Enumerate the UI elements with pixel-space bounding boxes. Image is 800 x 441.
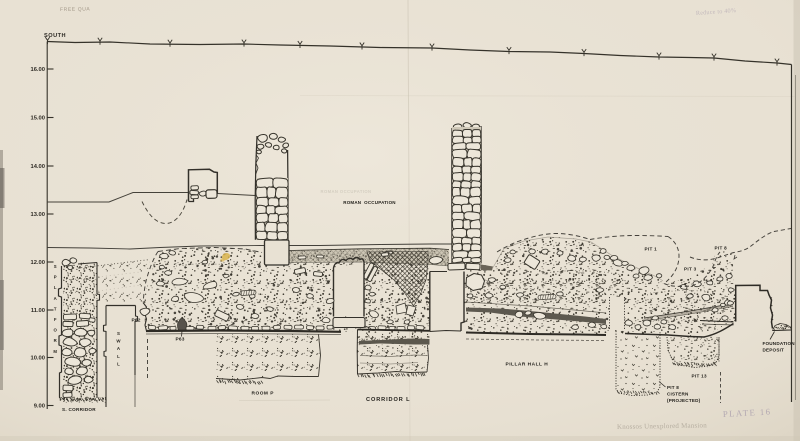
svg-text:PIT 13: PIT 13 — [692, 374, 707, 379]
svg-text:13.00: 13.00 — [30, 212, 45, 218]
svg-text:P63: P63 — [176, 337, 185, 343]
svg-text:PIT 3: PIT 3 — [684, 267, 697, 272]
svg-text:CISTERN: CISTERN — [667, 392, 689, 397]
svg-text:P62: P62 — [132, 318, 141, 324]
svg-text:11.00: 11.00 — [31, 308, 45, 314]
svg-text:L: L — [117, 354, 120, 359]
svg-text:12.00: 12.00 — [30, 260, 45, 266]
svg-text:P: P — [54, 275, 57, 280]
svg-text:9.00: 9.00 — [34, 404, 45, 410]
svg-text:ROMAN OCCUPATION: ROMAN OCCUPATION — [321, 189, 372, 194]
svg-text:A: A — [54, 296, 57, 301]
svg-text:DEPOSIT: DEPOSIT — [763, 348, 785, 353]
svg-text:10.00: 10.00 — [30, 356, 45, 362]
svg-text:M: M — [53, 349, 57, 354]
svg-text:PILLAR HALL H: PILLAR HALL H — [506, 362, 549, 368]
svg-text:FOUNDATION: FOUNDATION — [763, 341, 796, 346]
svg-text:PIT 8: PIT 8 — [715, 246, 728, 251]
svg-text:SOUTH: SOUTH — [44, 33, 66, 39]
svg-text:F: F — [54, 317, 57, 322]
svg-text:(PROJECTED): (PROJECTED) — [667, 398, 701, 403]
svg-text:ROMAN OCCUPATION: ROMAN OCCUPATION — [343, 200, 395, 205]
svg-text:PIT 8: PIT 8 — [667, 385, 679, 390]
svg-text:PIT 1: PIT 1 — [645, 247, 658, 252]
svg-text:CORRIDOR L: CORRIDOR L — [366, 397, 410, 403]
svg-text:L: L — [54, 285, 57, 290]
svg-text:S. CORRIDOR: S. CORRIDOR — [62, 407, 96, 412]
svg-text:Knossos Unexplored Mansion: Knossos Unexplored Mansion — [617, 421, 707, 431]
svg-text:ROOM P: ROOM P — [252, 391, 275, 397]
svg-text:T: T — [54, 306, 57, 311]
svg-text:16.00: 16.00 — [30, 67, 45, 73]
svg-text:15.00: 15.00 — [30, 116, 45, 122]
svg-text:S: S — [117, 331, 120, 336]
svg-text:FREE QUA: FREE QUA — [60, 6, 91, 13]
svg-text:L: L — [117, 361, 120, 366]
svg-text:14.00: 14.00 — [30, 164, 45, 170]
svg-text:S: S — [54, 264, 57, 269]
